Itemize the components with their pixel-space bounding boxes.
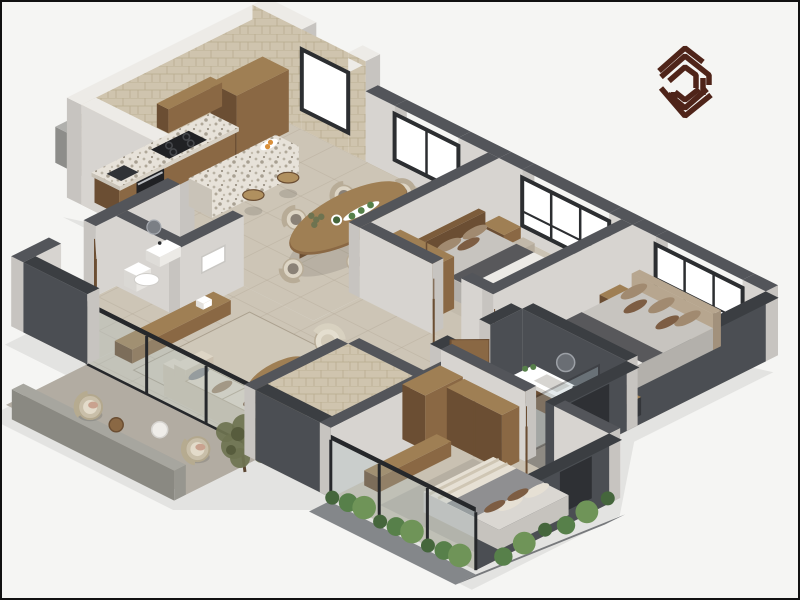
isometric-scene [2,2,798,598]
round-mirror [557,354,575,372]
brand-logomark [659,48,711,116]
wood-side-table [109,418,123,432]
white-side-table [152,422,168,438]
floorplan-render [0,0,800,600]
round-mirror [147,220,161,234]
